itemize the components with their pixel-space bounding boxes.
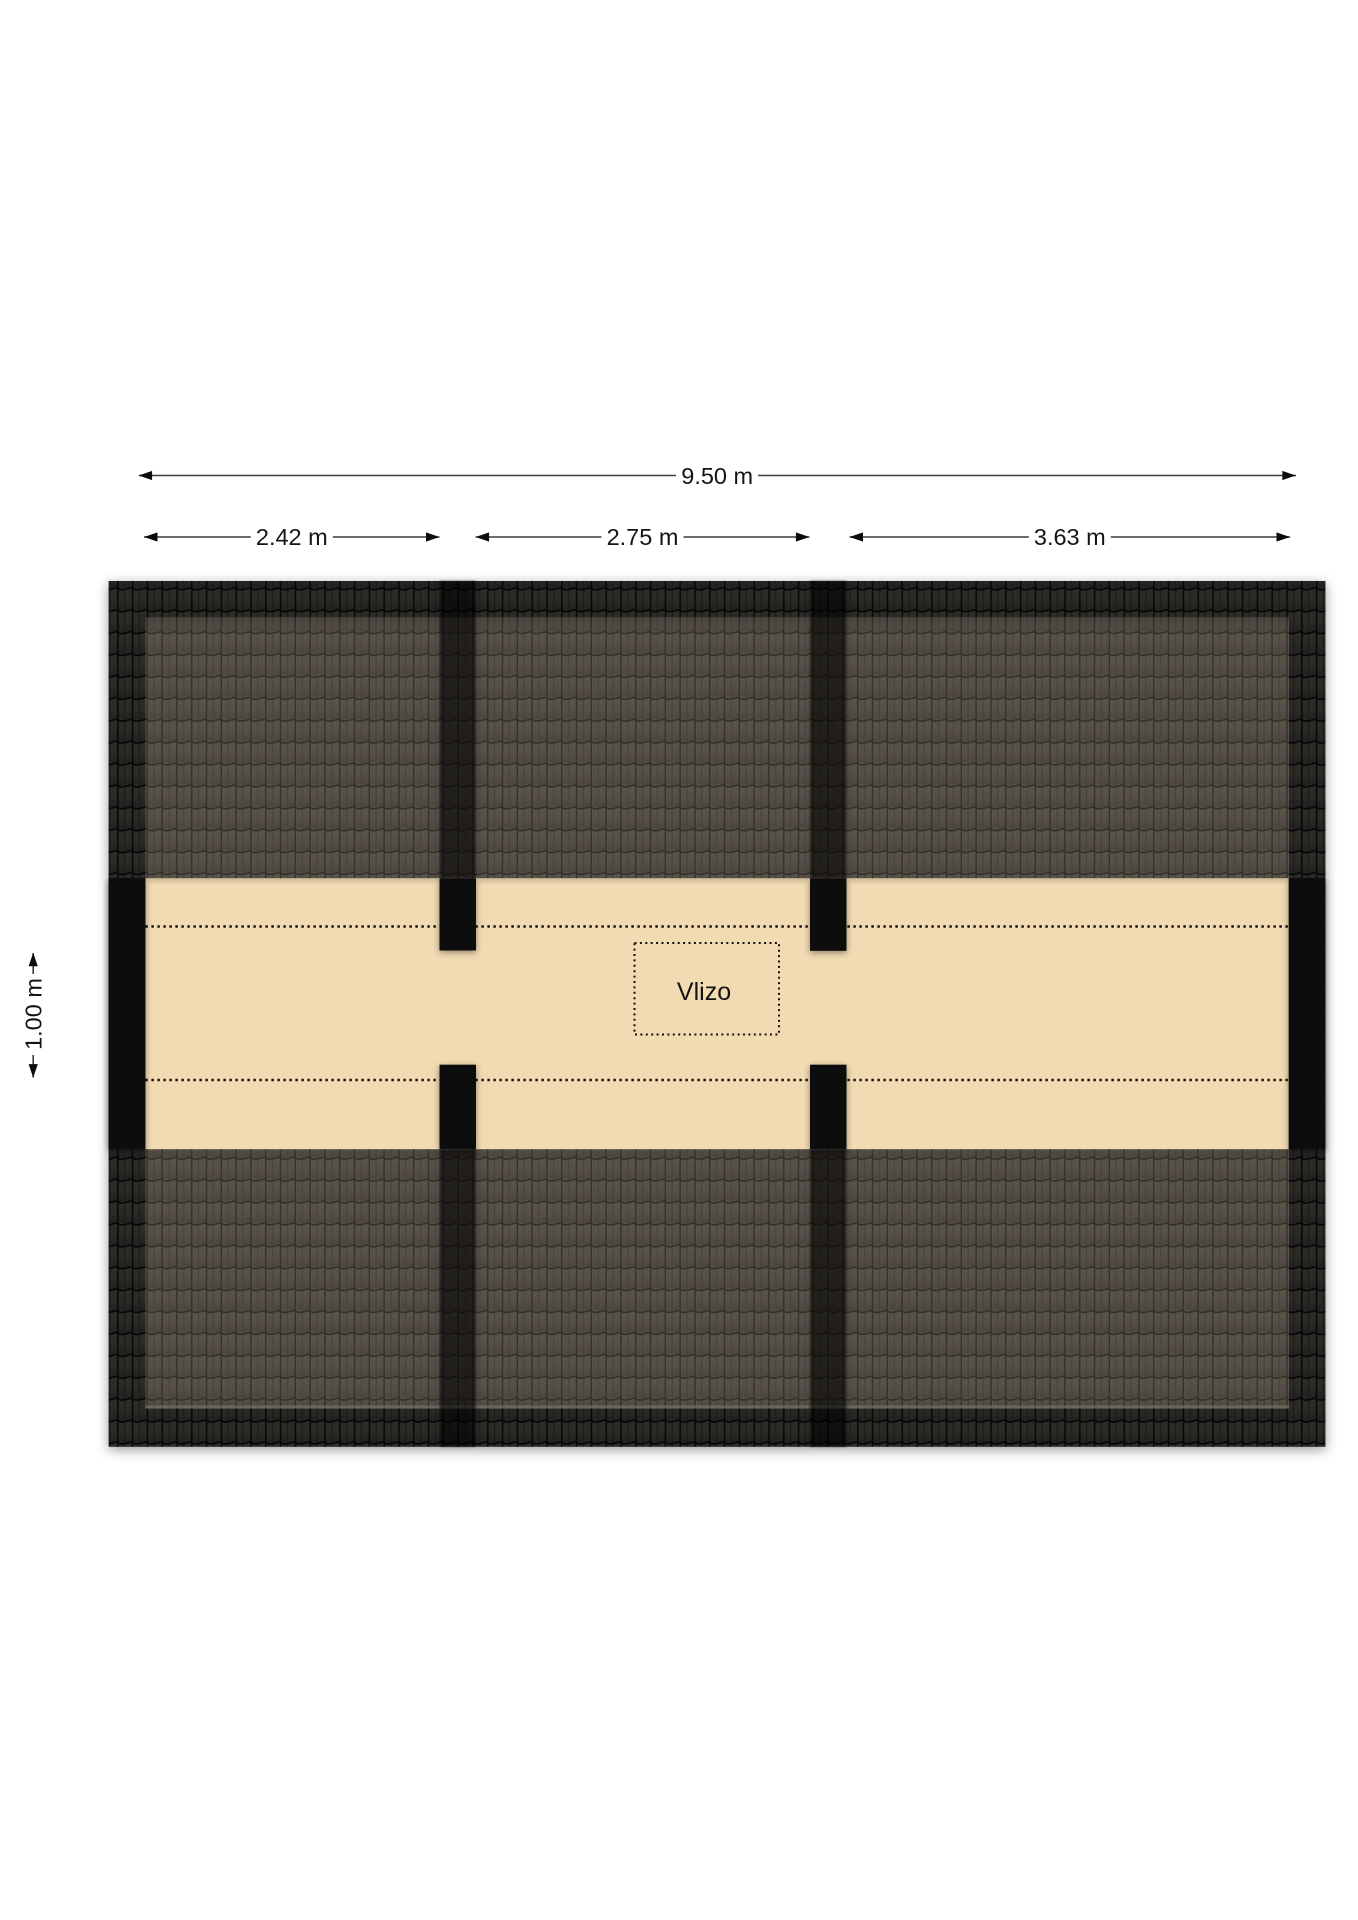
svg-text:1.00 m: 1.00 m <box>21 978 47 1050</box>
svg-text:Vlizo: Vlizo <box>677 978 731 1006</box>
svg-text:3.63 m: 3.63 m <box>1034 524 1106 550</box>
svg-text:9.50 m: 9.50 m <box>681 463 753 489</box>
svg-text:2.42 m: 2.42 m <box>256 524 328 550</box>
svg-text:2.75 m: 2.75 m <box>607 524 679 550</box>
